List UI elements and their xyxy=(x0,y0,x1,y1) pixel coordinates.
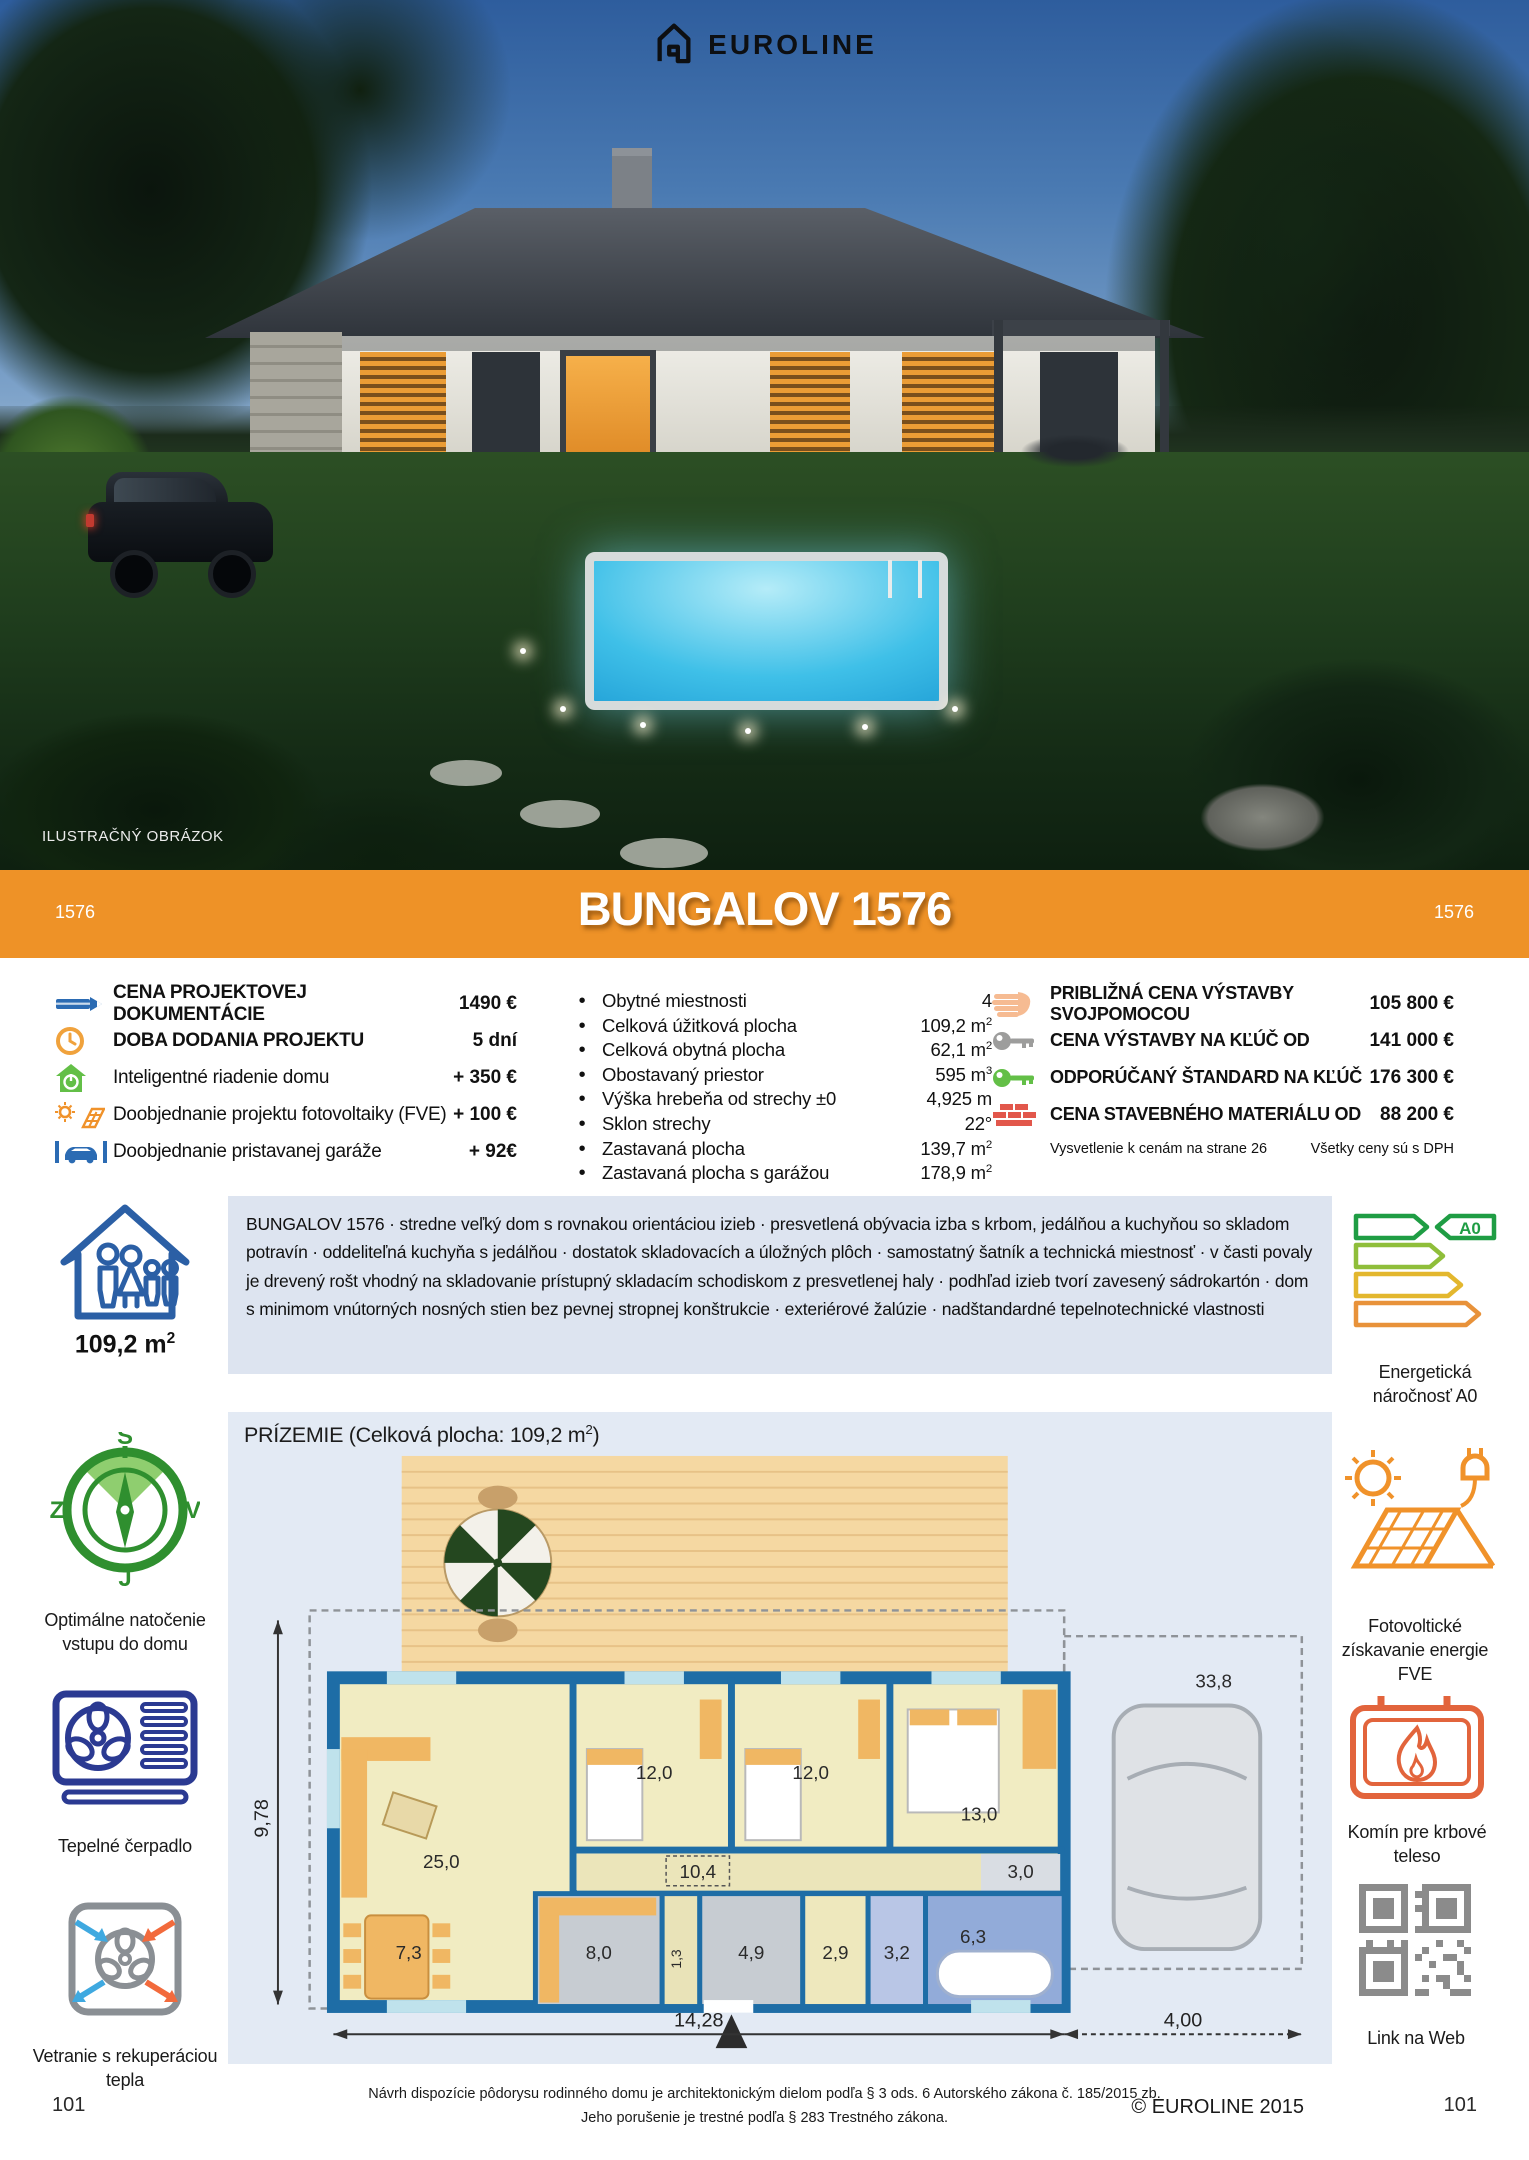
photo-window-3 xyxy=(770,352,850,456)
price-row: ODPORÚČANÝ ŠTANDARD NA KĽÚČ 176 300 € xyxy=(992,1059,1454,1096)
photovoltaic-caption: Fotovoltické získavanie energie FVE xyxy=(1325,1615,1505,1686)
heat-pump-caption: Tepelné čerpadlo xyxy=(55,1835,195,1859)
dim-garage-label: 4,00 xyxy=(1164,2009,1203,2031)
spec-label: Obostavaný priestor xyxy=(602,1064,935,1086)
dim-depth-label: 9,78 xyxy=(251,1799,273,1838)
order-row: Inteligentné riadenie domu + 350 € xyxy=(55,1059,517,1096)
photo-caption: ILUSTRAČNÝ OBRÁZOK xyxy=(42,828,224,845)
photo-rock xyxy=(1185,775,1340,860)
bullet-icon xyxy=(562,1064,602,1087)
spec-label: Celková úžitková plocha xyxy=(602,1015,920,1037)
brand-logo: EUROLINE xyxy=(0,20,1529,69)
compass-south-label: J xyxy=(118,1565,131,1588)
price-label: CENA VÝSTAVBY NA KĽÚČ OD xyxy=(1050,1030,1369,1051)
photo-pergola-post-2 xyxy=(1160,320,1169,468)
fireplace-icon xyxy=(1347,1696,1487,1807)
room-label: 1,3 xyxy=(668,1949,684,1969)
order-label: Doobjednanie projektu fotovoltaiky (FVE) xyxy=(113,1104,453,1126)
bullet-icon xyxy=(562,1162,602,1185)
qr-caption: Link na Web xyxy=(1346,2027,1486,2051)
garage-car xyxy=(1114,1705,1261,1949)
order-row: DOBA DODANIA PROJEKTU 5 dní xyxy=(55,1022,517,1059)
price-row: CENA STAVEBNÉHO MATERIÁLU OD 88 200 € xyxy=(992,1096,1454,1133)
room-label: 7,3 xyxy=(396,1942,422,1963)
order-value: 5 dní xyxy=(473,1030,517,1052)
photo-car-wheel xyxy=(110,550,158,598)
spec-row: Celková úžitková plocha109,2 m2 xyxy=(562,1015,992,1040)
photo-stepping-stone xyxy=(620,838,708,868)
garage-car-icon xyxy=(55,1139,113,1165)
ventilation-feature: Vetranie s rekuperáciou tepla xyxy=(55,1898,195,2093)
smart-home-icon xyxy=(55,1063,113,1093)
photo-garden-light xyxy=(640,722,646,728)
pencil-icon xyxy=(55,994,113,1014)
photo-car xyxy=(88,472,273,590)
spec-row: Obytné miestnosti4 xyxy=(562,990,992,1015)
spec-value: 139,7 m2 xyxy=(920,1138,992,1160)
price-value: 176 300 € xyxy=(1369,1067,1454,1089)
spec-value: 62,1 m2 xyxy=(930,1039,992,1061)
photo-window-1 xyxy=(360,352,446,456)
order-label: Inteligentné riadenie domu xyxy=(113,1067,453,1089)
room-label: 25,0 xyxy=(423,1851,460,1872)
photo-garden-light xyxy=(952,706,958,712)
photo-eave-shadow xyxy=(250,336,1155,351)
model-code-right: 1576 xyxy=(1434,902,1474,923)
area-caption: 109,2 m2 xyxy=(40,1330,210,1359)
key-gray-icon xyxy=(992,1030,1050,1052)
photo-garden-light xyxy=(745,728,751,734)
spec-row: Výška hrebeňa od strechy ±04,925 m xyxy=(562,1088,992,1113)
heat-pump-feature: Tepelné čerpadlo xyxy=(45,1688,205,1859)
spec-row: Obostavaný priestor595 m3 xyxy=(562,1064,992,1089)
price-row: PRIBLIŽNÁ CENA VÝSTAVBY SVOJPOMOCOU 105 … xyxy=(992,985,1454,1022)
energy-feature: A0 Energetická náročnosť A0 xyxy=(1340,1210,1510,1409)
terrace xyxy=(402,1456,1008,1686)
room-label: 12,0 xyxy=(636,1762,673,1783)
spec-value: 178,9 m2 xyxy=(920,1162,992,1184)
area-feature xyxy=(40,1198,210,1327)
order-label: Doobjednanie pristavanej garáže xyxy=(113,1141,469,1163)
price-value: 88 200 € xyxy=(1380,1104,1454,1126)
spec-value: 4,925 m xyxy=(927,1088,992,1110)
energy-class-label: A0 xyxy=(1459,1219,1481,1238)
spec-row: Zastavaná plocha139,7 m2 xyxy=(562,1138,992,1163)
spec-row: Zastavaná plocha s garážou178,9 m2 xyxy=(562,1162,992,1187)
compass-east-label: V xyxy=(185,1497,200,1524)
title-banner: 1576 BUNGALOV 1576 1576 xyxy=(0,870,1529,958)
spec-label: Zastavaná plocha xyxy=(602,1138,920,1160)
photo-garden-light xyxy=(520,648,526,654)
spec-row: Celková obytná plocha62,1 m2 xyxy=(562,1039,992,1064)
dim-width-label: 14,28 xyxy=(674,2009,724,2031)
photovoltaic-feature: Fotovoltické získavanie energie FVE xyxy=(1335,1448,1495,1686)
fireplace-caption: Komín pre krbové teleso xyxy=(1332,1821,1502,1869)
compass-icon: S V J Z xyxy=(50,1432,200,1593)
compass-west-label: Z xyxy=(50,1497,64,1524)
spec-label: Zastavaná plocha s garážou xyxy=(602,1162,920,1184)
bricks-icon xyxy=(992,1103,1050,1127)
room-label: 4,9 xyxy=(738,1942,764,1963)
order-value: + 100 € xyxy=(453,1104,517,1126)
photo-car-taillight xyxy=(86,514,94,527)
room-label: 3,2 xyxy=(884,1942,910,1963)
price-value: 105 800 € xyxy=(1369,993,1454,1015)
room-label: 6,3 xyxy=(960,1926,986,1947)
key-green-icon xyxy=(992,1067,1050,1089)
price-note-right: Všetky ceny sú s DPH xyxy=(1311,1141,1454,1157)
spec-label: Výška hrebeňa od strechy ±0 xyxy=(602,1088,927,1110)
order-label: CENA PROJEKTOVEJ DOKUMENTÁCIE xyxy=(113,982,459,1026)
spec-label: Sklon strechy xyxy=(602,1113,965,1135)
order-row: CENA PROJEKTOVEJ DOKUMENTÁCIE 1490 € xyxy=(55,985,517,1022)
specs-list: Obytné miestnosti4 Celková úžitková ploc… xyxy=(562,990,992,1187)
bullet-icon xyxy=(562,1039,602,1062)
brand-logo-text: EUROLINE xyxy=(708,29,877,61)
photo-stone-pillar xyxy=(250,332,342,464)
bullet-icon xyxy=(562,1113,602,1136)
page-number-left: 101 xyxy=(52,2094,85,2117)
spec-row: Sklon strechy22° xyxy=(562,1113,992,1138)
description-text: BUNGALOV 1576 · stredne veľký dom s rovn… xyxy=(246,1214,1312,1319)
house-family-icon xyxy=(54,1198,196,1327)
bullet-icon xyxy=(562,990,602,1013)
bullet-icon xyxy=(562,1088,602,1111)
room-label: 10,4 xyxy=(679,1861,716,1882)
order-row: Doobjednanie pristavanej garáže + 92€ xyxy=(55,1133,517,1170)
photo-garden-light xyxy=(862,724,868,730)
price-note-left: Vysvetlenie k cenám na strane 26 xyxy=(1050,1141,1267,1157)
ventilation-icon xyxy=(60,1898,190,2027)
fireplace-feature: Komín pre krbové teleso xyxy=(1342,1696,1492,1869)
price-row: CENA VÝSTAVBY NA KĽÚČ OD 141 000 € xyxy=(992,1022,1454,1059)
qr-code-icon xyxy=(1359,1884,1473,2003)
room-label: 13,0 xyxy=(961,1803,998,1824)
room-label: 2,9 xyxy=(822,1942,848,1963)
description-box: BUNGALOV 1576 · stredne veľký dom s rovn… xyxy=(228,1196,1332,1374)
solar-icon xyxy=(55,1100,113,1130)
bathtub xyxy=(937,1951,1052,1997)
room-label: 8,0 xyxy=(586,1942,612,1963)
order-value: + 92€ xyxy=(469,1141,517,1163)
brand-house-icon xyxy=(652,20,696,69)
catalog-page: EUROLINE ILUSTRAČNÝ OBRÁZOK 1576 BUNGALO… xyxy=(0,0,1529,2160)
photo-car-wheel xyxy=(208,550,256,598)
order-column: CENA PROJEKTOVEJ DOKUMENTÁCIE 1490 € DOB… xyxy=(55,985,517,1170)
price-label: PRIBLIŽNÁ CENA VÝSTAVBY SVOJPOMOCOU xyxy=(1050,983,1369,1025)
hand-icon xyxy=(992,990,1050,1018)
energy-caption: Energetická náročnosť A0 xyxy=(1345,1361,1505,1409)
photo-garden-light xyxy=(560,706,566,712)
spec-value: 22° xyxy=(965,1113,992,1135)
compass-caption: Optimálne natočenie vstupu do domu xyxy=(40,1609,210,1657)
build-price-column: PRIBLIŽNÁ CENA VÝSTAVBY SVOJPOMOCOU 105 … xyxy=(992,985,1454,1157)
energy-label-icon: A0 xyxy=(1350,1210,1500,1337)
compass-feature: S V J Z Optimálne natočenie vstupu do do… xyxy=(40,1432,210,1657)
clock-icon xyxy=(55,1026,113,1056)
corridor xyxy=(577,1854,981,1891)
price-value: 141 000 € xyxy=(1369,1030,1454,1052)
room-label: 33,8 xyxy=(1195,1671,1232,1692)
page-number-right: 101 xyxy=(1444,2094,1477,2117)
price-label: ODPORÚČANÝ ŠTANDARD NA KĽÚČ xyxy=(1050,1067,1369,1088)
heat-pump-icon xyxy=(50,1688,200,1813)
photovoltaic-icon xyxy=(1335,1448,1495,1581)
photo-window-2 xyxy=(472,352,540,456)
photo-pool-ladder xyxy=(888,560,922,598)
order-value: 1490 € xyxy=(459,993,517,1015)
floorplan-drawing: 25,0 12,0 12,0 13,0 10,4 3,0 7,3 8,0 1,3… xyxy=(238,1452,1318,2058)
photo-patio-door xyxy=(902,352,1002,456)
order-value: + 350 € xyxy=(453,1067,517,1089)
spec-label: Obytné miestnosti xyxy=(602,990,982,1012)
room-label: 3,0 xyxy=(1008,1861,1034,1882)
bullet-icon xyxy=(562,1138,602,1161)
photo-stepping-stone xyxy=(520,800,600,828)
photo-entry-door xyxy=(560,350,656,460)
spec-label: Celková obytná plocha xyxy=(602,1039,930,1061)
order-label: DOBA DODANIA PROJEKTU xyxy=(113,1030,473,1052)
price-notes: Vysvetlenie k cenám na strane 26 Všetky … xyxy=(992,1141,1454,1157)
photo-pergola xyxy=(992,320,1170,336)
bullet-icon xyxy=(562,1015,602,1038)
qr-feature: Link na Web xyxy=(1356,1884,1476,2051)
copyright: © EUROLINE 2015 xyxy=(1131,2096,1304,2119)
spec-value: 4 xyxy=(982,990,992,1012)
photo-car-window xyxy=(114,478,216,504)
spec-value: 595 m3 xyxy=(935,1064,992,1086)
compass-north-label: S xyxy=(117,1432,133,1450)
spec-value: 109,2 m2 xyxy=(920,1015,992,1037)
room-label: 12,0 xyxy=(792,1762,829,1783)
hero-photo: EUROLINE ILUSTRAČNÝ OBRÁZOK xyxy=(0,0,1529,870)
page-title: BUNGALOV 1576 xyxy=(0,881,1529,936)
price-label: CENA STAVEBNÉHO MATERIÁLU OD xyxy=(1050,1104,1380,1125)
order-row: Doobjednanie projektu fotovoltaiky (FVE)… xyxy=(55,1096,517,1133)
floorplan-title: PRÍZEMIE (Celková plocha: 109,2 m2) xyxy=(244,1422,599,1448)
photo-patio-furniture xyxy=(1000,428,1150,474)
